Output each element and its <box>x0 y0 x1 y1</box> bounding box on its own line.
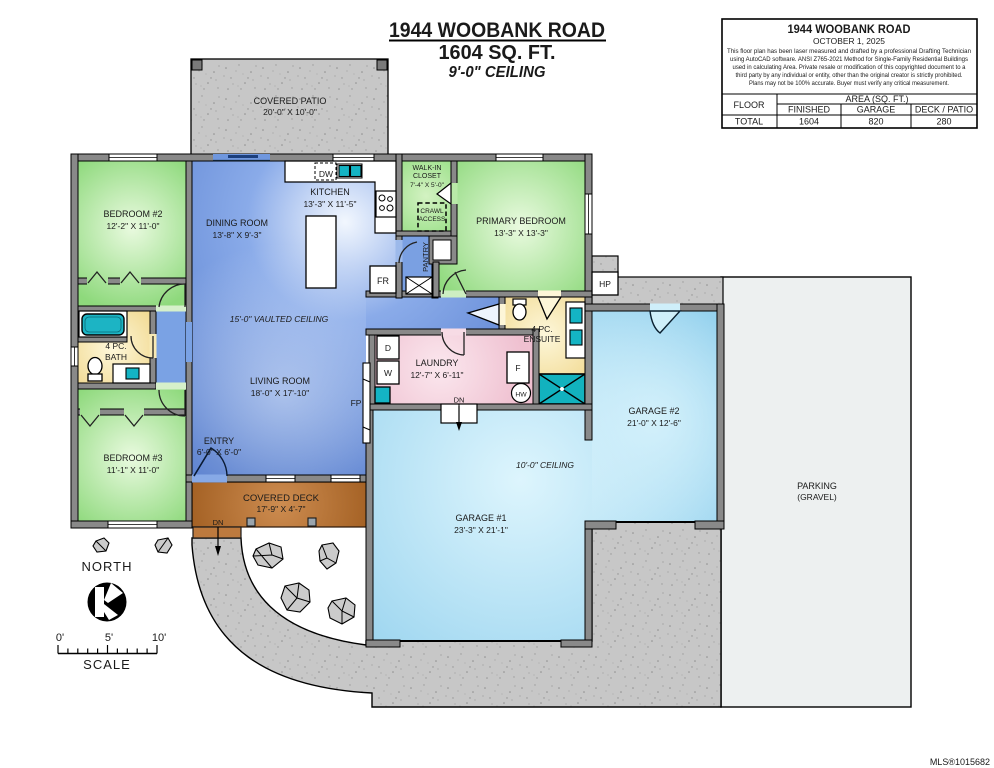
svg-text:13'-8" X 9'-3": 13'-8" X 9'-3" <box>213 230 262 240</box>
svg-text:DN: DN <box>454 396 465 405</box>
svg-text:third party by any individual: third party by any individual or entity,… <box>736 72 963 79</box>
svg-text:MLS®1015682: MLS®1015682 <box>930 757 990 767</box>
svg-text:used in calculating Area. Priv: used in calculating Area. Private resale… <box>733 64 966 71</box>
svg-text:FP: FP <box>351 398 362 408</box>
svg-text:GARAGE #2: GARAGE #2 <box>628 406 679 416</box>
svg-text:1604: 1604 <box>799 117 819 127</box>
svg-text:20'-0" X 10'-0": 20'-0" X 10'-0" <box>263 107 317 117</box>
svg-text:Plans may not be 100% accurate: Plans may not be 100% accurate. Buyer mu… <box>749 80 949 87</box>
svg-text:820: 820 <box>868 117 883 127</box>
svg-text:D: D <box>385 343 391 353</box>
svg-text:PANTRY: PANTRY <box>421 242 430 272</box>
svg-text:BATH: BATH <box>105 352 127 362</box>
svg-text:HP: HP <box>599 279 611 289</box>
svg-text:12'-7" X 6'-11": 12'-7" X 6'-11" <box>410 370 463 380</box>
svg-text:PARKING: PARKING <box>797 481 837 491</box>
svg-text:6'-0" X 6'-0": 6'-0" X 6'-0" <box>197 447 241 457</box>
svg-text:7'-4" X 5'-0": 7'-4" X 5'-0" <box>410 182 445 189</box>
svg-text:LIVING ROOM: LIVING ROOM <box>250 376 310 386</box>
svg-text:CRAWL: CRAWL <box>420 208 444 215</box>
svg-text:PRIMARY BEDROOM: PRIMARY BEDROOM <box>476 216 566 226</box>
svg-text:10'-0" CEILING: 10'-0" CEILING <box>516 460 574 470</box>
svg-text:DECK / PATIO: DECK / PATIO <box>915 105 973 115</box>
svg-text:ENTRY: ENTRY <box>204 436 234 446</box>
svg-text:12'-2" X 11'-0": 12'-2" X 11'-0" <box>106 221 159 231</box>
svg-text:LAUNDRY: LAUNDRY <box>416 358 459 368</box>
svg-text:BEDROOM #2: BEDROOM #2 <box>103 209 162 219</box>
svg-text:COVERED PATIO: COVERED PATIO <box>254 96 327 106</box>
svg-text:13'-3" X 13'-3": 13'-3" X 13'-3" <box>494 228 548 238</box>
svg-text:9'-0" CEILING: 9'-0" CEILING <box>449 64 546 81</box>
svg-text:10': 10' <box>152 632 166 644</box>
svg-text:ENSUITE: ENSUITE <box>524 334 561 344</box>
svg-text:FINISHED: FINISHED <box>788 105 831 115</box>
svg-text:11'-1" X 11'-0": 11'-1" X 11'-0" <box>107 465 159 475</box>
svg-text:CLOSET: CLOSET <box>413 173 442 180</box>
svg-text:1944 WOOBANK ROAD: 1944 WOOBANK ROAD <box>788 24 911 36</box>
svg-text:GARAGE: GARAGE <box>857 105 896 115</box>
svg-text:DINING ROOM: DINING ROOM <box>206 218 268 228</box>
svg-text:FR: FR <box>377 276 389 286</box>
svg-text:WALK-IN: WALK-IN <box>413 165 442 172</box>
svg-text:4 PC.: 4 PC. <box>531 324 552 334</box>
svg-text:4 PC.: 4 PC. <box>105 341 126 351</box>
svg-text:BEDROOM #3: BEDROOM #3 <box>103 453 162 463</box>
svg-text:FLOOR: FLOOR <box>733 100 765 110</box>
svg-text:DN: DN <box>213 518 224 527</box>
svg-text:OCTOBER 1, 2025: OCTOBER 1, 2025 <box>813 37 886 46</box>
svg-text:1944 WOOBANK ROAD: 1944 WOOBANK ROAD <box>389 18 605 42</box>
svg-text:GARAGE #1: GARAGE #1 <box>455 513 506 523</box>
svg-text:280: 280 <box>936 117 951 127</box>
svg-text:AREA (SQ. FT.): AREA (SQ. FT.) <box>845 94 908 104</box>
svg-text:21'-0" X 12'-6": 21'-0" X 12'-6" <box>627 418 681 428</box>
svg-text:18'-0" X 17'-10": 18'-0" X 17'-10" <box>251 388 309 398</box>
svg-text:NORTH: NORTH <box>82 559 133 574</box>
svg-text:(GRAVEL): (GRAVEL) <box>797 492 837 502</box>
svg-text:ACCESS: ACCESS <box>419 216 446 223</box>
svg-text:KITCHEN: KITCHEN <box>310 187 350 197</box>
svg-text:using AutoCAD software. ANSI Z: using AutoCAD software. ANSI Z765-2021 M… <box>730 56 968 63</box>
svg-text:This floor plan has been laser: This floor plan has been laser measured … <box>727 48 971 55</box>
svg-text:DW: DW <box>319 169 333 179</box>
svg-text:W: W <box>384 368 392 378</box>
svg-text:F: F <box>515 363 520 373</box>
svg-text:0': 0' <box>56 632 64 644</box>
svg-text:TOTAL: TOTAL <box>735 117 763 127</box>
svg-text:13'-3" X 11'-5": 13'-3" X 11'-5" <box>303 199 356 209</box>
svg-text:HW: HW <box>515 392 527 399</box>
svg-text:17'-9" X 4'-7": 17'-9" X 4'-7" <box>257 504 306 514</box>
svg-text:1604 SQ. FT.: 1604 SQ. FT. <box>439 42 556 64</box>
svg-text:15'-0" VAULTED CEILING: 15'-0" VAULTED CEILING <box>230 314 329 324</box>
svg-text:COVERED DECK: COVERED DECK <box>243 493 320 504</box>
svg-text:SCALE: SCALE <box>83 657 131 672</box>
svg-text:23'-3" X 21'-1": 23'-3" X 21'-1" <box>454 525 508 535</box>
svg-text:5': 5' <box>105 632 113 644</box>
